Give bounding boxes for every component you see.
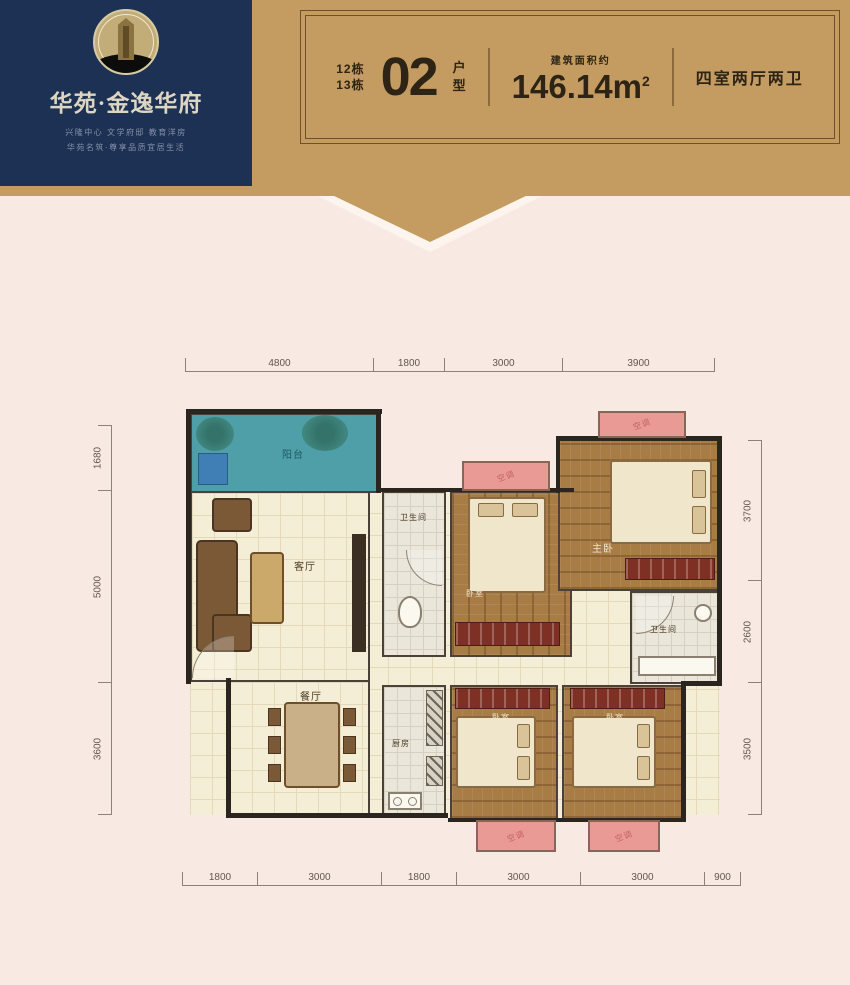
unit-suffix-1: 户: [453, 59, 466, 77]
dim-value: 3000: [308, 872, 330, 883]
unit-number: 02: [381, 50, 437, 104]
dim-value: 1800: [408, 872, 430, 883]
brand-tagline-2: 华苑名筑·尊享品质宜居生活: [65, 140, 186, 155]
logo-building-icon: [118, 18, 134, 60]
dim-value: 4800: [268, 358, 290, 369]
sink-basin: [408, 797, 417, 806]
wall-segment: [226, 813, 448, 818]
wall-segment: [376, 409, 381, 493]
dim-left-1: 1680: [98, 425, 112, 490]
dim-top-2: 1800: [373, 358, 444, 372]
bed-master: [610, 460, 712, 544]
dim-right-3: 3500: [748, 682, 762, 815]
ac-bay-bedroom-2: 空调: [476, 820, 556, 852]
dim-top-4: 3900: [562, 358, 715, 372]
building-number-1: 12栋: [336, 61, 364, 77]
dining-chair: [268, 764, 281, 782]
area-label: 建筑面积约: [551, 52, 611, 67]
dim-value: 3900: [627, 358, 649, 369]
dim-value: 3000: [492, 358, 514, 369]
ac-bay-bedroom-1: 空调: [462, 461, 550, 491]
wall-segment: [556, 436, 560, 493]
dim-bottom-2: 3000: [257, 872, 381, 886]
banner-divider-2: [672, 48, 674, 106]
dimension-line-right: 3700 2600 3500: [748, 440, 762, 815]
label-bedroom-3: 卧室: [606, 712, 624, 723]
label-bathroom-2: 卫生间: [650, 624, 677, 635]
label-bathroom-1: 卫生间: [400, 512, 427, 523]
dim-value: 1800: [209, 872, 231, 883]
dim-top-1: 4800: [185, 358, 373, 372]
pillow: [692, 470, 706, 498]
pillow: [637, 724, 650, 748]
bed: [468, 497, 546, 593]
pillow: [512, 503, 538, 517]
kitchen-counter: [426, 756, 443, 786]
sink-basin: [393, 797, 402, 806]
dim-value: 2600: [742, 620, 753, 642]
dining-chair: [343, 708, 356, 726]
wardrobe: [570, 688, 665, 709]
ac-label: 空调: [506, 828, 527, 844]
dining-table: [284, 702, 340, 788]
plant-icon: [302, 415, 348, 451]
dim-value: 5000: [92, 575, 103, 597]
unit-type-label: 户 型: [453, 59, 466, 95]
armchair: [212, 498, 252, 532]
coffee-table: [250, 552, 284, 624]
pillow: [692, 506, 706, 534]
dim-right-1: 3700: [748, 440, 762, 580]
kitchen-sink: [388, 792, 422, 810]
ac-label: 空调: [614, 828, 635, 844]
area-value: 146.14m2: [512, 70, 650, 103]
pillow: [517, 756, 530, 780]
brand-panel: 华苑·金逸华府 兴隆中心 文学府邸 教育洋房 华苑名筑·尊享品质宜居生活: [0, 0, 252, 186]
bed: [572, 716, 656, 788]
dim-right-2: 2600: [748, 580, 762, 682]
wall-segment: [684, 681, 722, 686]
wall-segment: [681, 681, 686, 822]
dim-value: 3500: [742, 737, 753, 759]
dim-bottom-6: 900: [704, 872, 741, 886]
label-bedroom-1: 卧室: [466, 588, 484, 599]
washbasin: [694, 604, 712, 622]
banner-divider-1: [488, 48, 490, 106]
wardrobe: [455, 622, 560, 646]
dimension-line-top: 4800 1800 3000 3900: [185, 358, 715, 372]
label-kitchen: 厨房: [392, 738, 410, 749]
toilet: [398, 596, 422, 628]
label-master: 主卧: [592, 540, 614, 555]
fridge: [426, 690, 443, 746]
brand-title: 华苑·金逸华府: [50, 84, 203, 118]
dim-left-3: 3600: [98, 682, 112, 815]
building-number-2: 13栋: [336, 77, 364, 93]
area-superscript: 2: [642, 73, 650, 89]
pillow: [517, 724, 530, 748]
label-balcony: 阳台: [282, 446, 304, 461]
building-numbers: 12栋 13栋: [336, 61, 364, 93]
dim-value: 3600: [92, 737, 103, 759]
ac-bay-bedroom-3: 空调: [588, 820, 660, 852]
bed: [456, 716, 536, 788]
wardrobe: [625, 558, 715, 580]
dim-top-3: 3000: [444, 358, 562, 372]
dim-value: 3000: [631, 872, 653, 883]
banner-arrow: [330, 194, 530, 242]
dim-left-2: 5000: [98, 490, 112, 682]
banner-content: 12栋 13栋 02 户 型 建筑面积约 146.14m2 四室两厅两卫: [300, 10, 840, 144]
area-block: 建筑面积约 146.14m2: [512, 52, 650, 103]
wall-segment: [186, 409, 382, 414]
label-bedroom-2: 卧室: [492, 712, 510, 723]
wall-segment: [226, 678, 231, 818]
brand-taglines: 兴隆中心 文学府邸 教育洋房 华苑名筑·尊享品质宜居生活: [65, 125, 186, 155]
label-living: 客厅: [294, 558, 316, 573]
dim-value: 3000: [507, 872, 529, 883]
tv-cabinet: [352, 534, 366, 652]
wall-segment: [717, 436, 722, 686]
pillow: [637, 756, 650, 780]
dim-bottom-5: 3000: [580, 872, 704, 886]
dim-value: 1680: [92, 447, 103, 469]
ac-bay-master: 空调: [598, 411, 686, 438]
wall-segment: [186, 409, 191, 684]
floorplan-poster: 12栋 13栋 02 户 型 建筑面积约 146.14m2 四室两厅两卫 华苑·…: [0, 0, 850, 985]
plant-icon: [196, 417, 234, 451]
dim-bottom-1: 1800: [182, 872, 257, 886]
room-layout-text: 四室两厅两卫: [696, 65, 804, 89]
dining-chair: [268, 708, 281, 726]
dining-chair: [268, 736, 281, 754]
unit-suffix-2: 型: [453, 77, 466, 95]
dining-chair: [343, 736, 356, 754]
bathtub: [638, 656, 716, 676]
ac-label: 空调: [496, 468, 517, 484]
dim-value: 3700: [742, 499, 753, 521]
dim-bottom-4: 3000: [456, 872, 580, 886]
brand-tagline-1: 兴隆中心 文学府邸 教育洋房: [65, 125, 186, 140]
dim-value: 1800: [398, 358, 420, 369]
dining-chair: [343, 764, 356, 782]
spa-tub-icon: [198, 453, 228, 485]
label-dining: 餐厅: [300, 688, 322, 703]
ac-label: 空调: [632, 416, 653, 432]
wardrobe: [455, 688, 550, 709]
dimension-line-bottom: 1800 3000 1800 3000 3000 900: [182, 872, 741, 886]
brand-logo-icon: [93, 9, 159, 75]
area-number: 146.14m: [512, 68, 642, 105]
pillow: [478, 503, 504, 517]
dimension-line-left: 1680 5000 3600: [98, 425, 112, 815]
dim-value: 900: [714, 872, 731, 883]
dim-bottom-3: 1800: [381, 872, 456, 886]
